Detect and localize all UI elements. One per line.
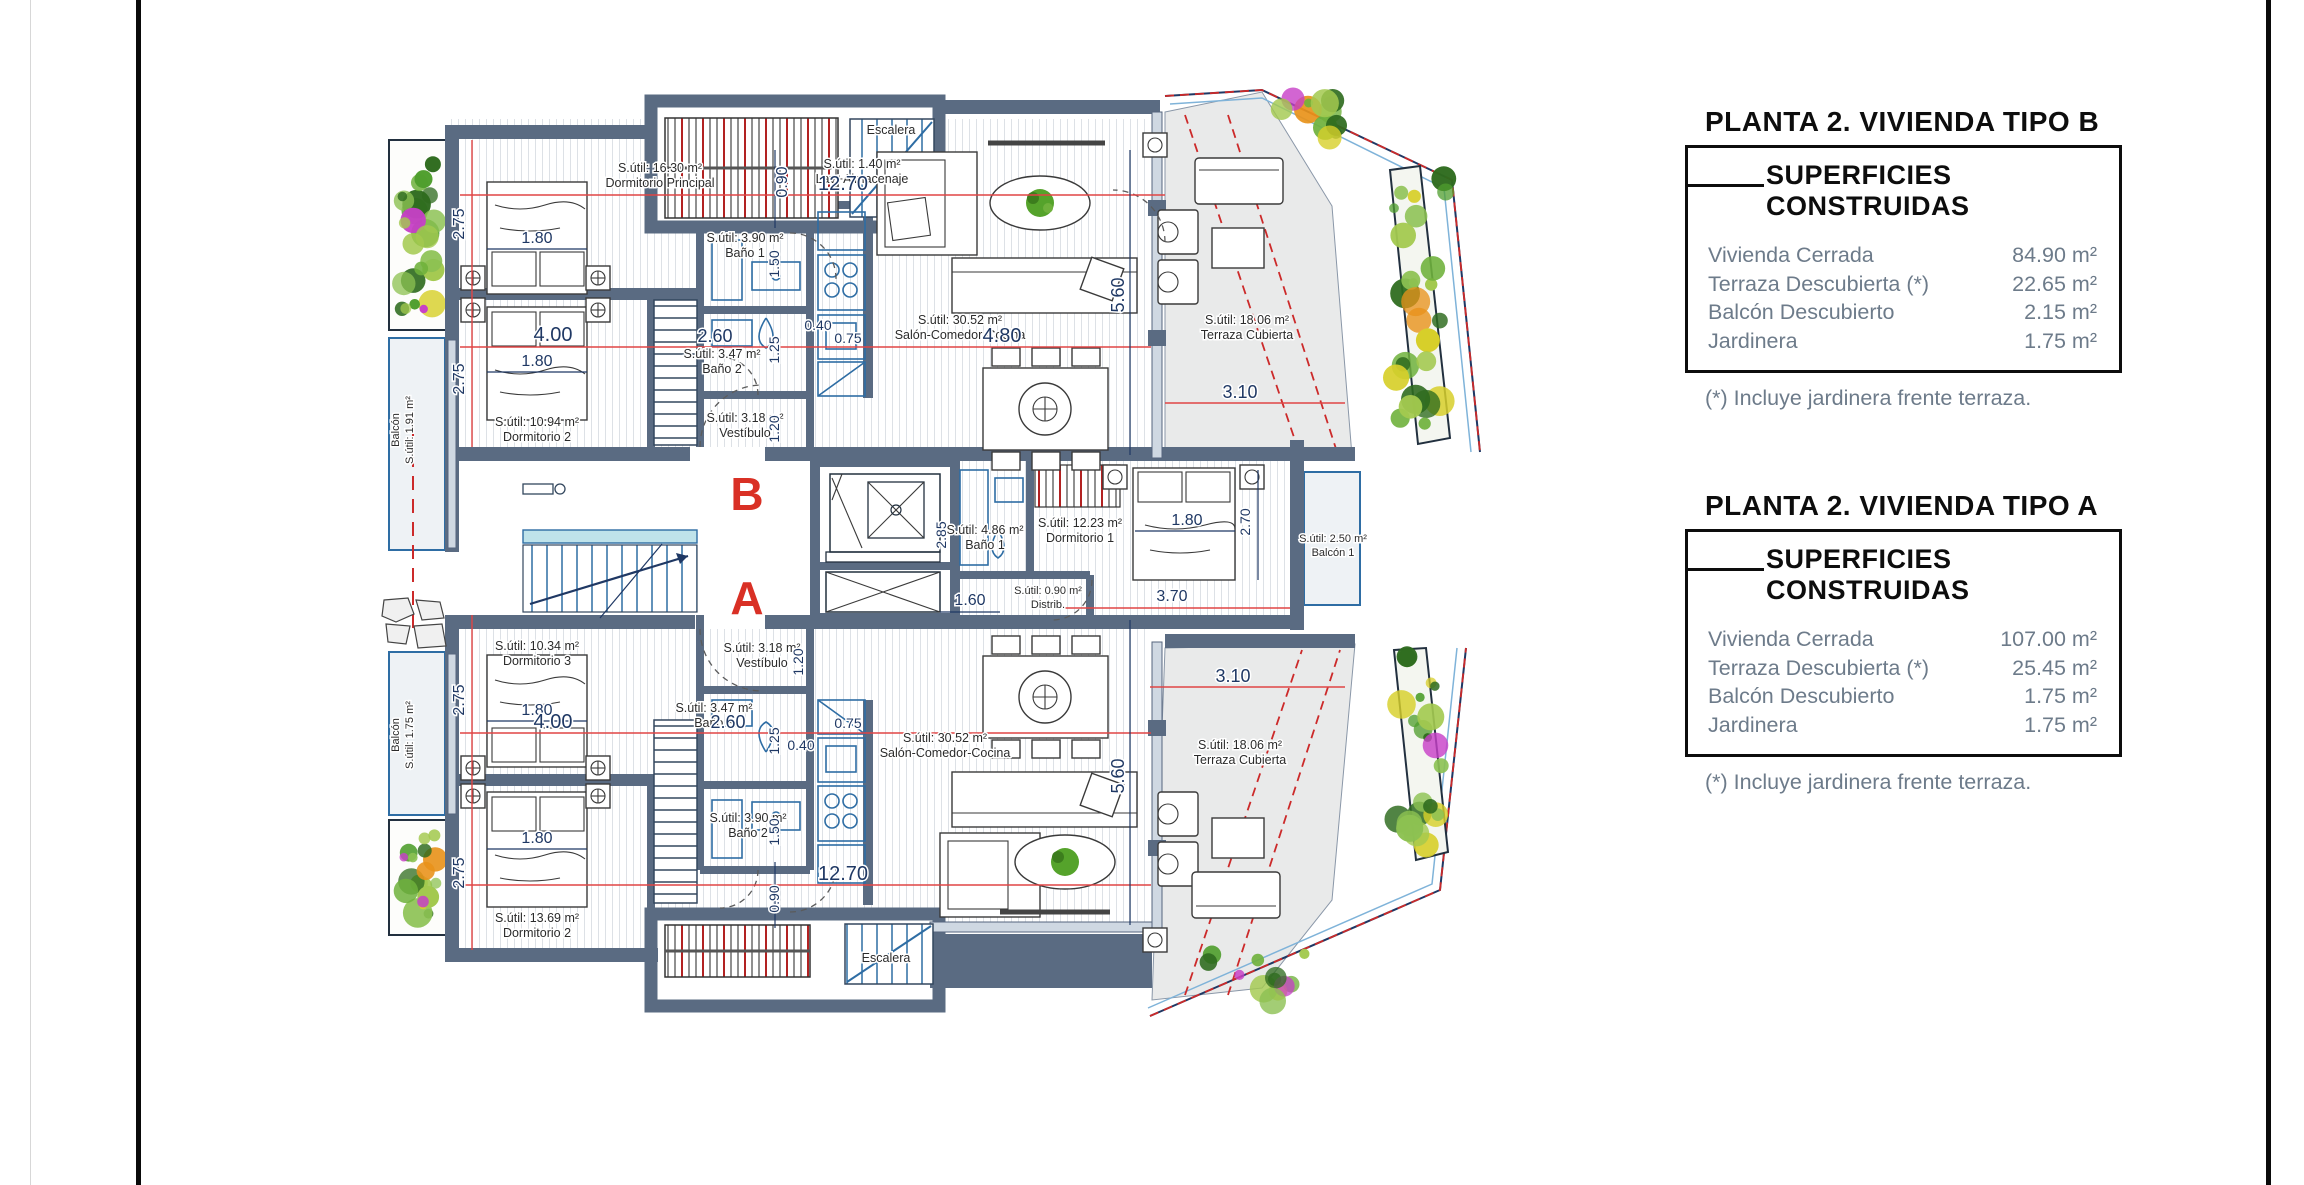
svg-text:0.90: 0.90 <box>766 885 782 912</box>
svg-text:Dormitorio 3: Dormitorio 3 <box>503 654 571 668</box>
svg-text:1.80: 1.80 <box>521 830 552 847</box>
svg-text:Vestíbulo: Vestíbulo <box>736 656 787 670</box>
svg-text:Dormitorio 2: Dormitorio 2 <box>503 926 571 940</box>
row-label: Vivienda Cerrada <box>1708 241 1874 270</box>
panel-b-footnote: (*) Incluye jardinera frente terraza. <box>1685 386 2122 411</box>
svg-text:2.85: 2.85 <box>933 521 949 548</box>
svg-text:Balcón: Balcón <box>390 413 402 447</box>
svg-text:2.60: 2.60 <box>710 712 745 732</box>
svg-text:Baño 2: Baño 2 <box>728 826 768 840</box>
svg-text:4.00: 4.00 <box>534 324 573 346</box>
row-label: Vivienda Cerrada <box>1708 625 1874 654</box>
row-value: 84.90 m² <box>2012 241 2097 270</box>
row-label: Terraza Descubierta (*) <box>1708 270 1929 299</box>
svg-text:Escalera: Escalera <box>867 123 916 137</box>
svg-text:Dormitorio 1: Dormitorio 1 <box>1046 531 1114 545</box>
svg-text:Terraza Cubierta: Terraza Cubierta <box>1194 753 1286 767</box>
floorplan-sheet: { "panels": [ { "title": "PLANTA 2. VIVI… <box>0 0 2304 1185</box>
row-label: Jardinera <box>1708 711 1798 740</box>
row-value: 107.00 m² <box>2000 625 2097 654</box>
unit-letter-b: B <box>730 468 763 520</box>
table-row: Terraza Descubierta (*)25.45 m² <box>1708 654 2097 683</box>
svg-text:0.40: 0.40 <box>804 317 831 333</box>
svg-text:1.20: 1.20 <box>766 415 782 442</box>
svg-text:S.útil: 18.06 m²: S.útil: 18.06 m² <box>1205 313 1289 327</box>
svg-text:S.útil: 2.50 m²: S.útil: 2.50 m² <box>1299 533 1367 545</box>
panel-b-title: PLANTA 2. VIVIENDA TIPO B <box>1685 105 2122 139</box>
svg-text:12.70: 12.70 <box>818 173 868 195</box>
svg-text:0.75: 0.75 <box>834 330 861 346</box>
svg-text:1.60: 1.60 <box>954 592 985 609</box>
table-row: Balcón Descubierto2.15 m² <box>1708 298 2097 327</box>
table-row: Vivienda Cerrada84.90 m² <box>1708 241 2097 270</box>
svg-text:2.75: 2.75 <box>451 857 468 888</box>
svg-text:1.25: 1.25 <box>766 727 782 754</box>
svg-text:S.útil: 3.47 m²: S.útil: 3.47 m² <box>683 347 760 361</box>
svg-text:Balcón 1: Balcón 1 <box>1312 547 1355 559</box>
svg-text:S.útil: 1.75 m²: S.útil: 1.75 m² <box>404 701 416 769</box>
row-label: Balcón Descubierto <box>1708 298 1894 327</box>
svg-text:S.útil: 10.94 m²: S.útil: 10.94 m² <box>495 415 579 429</box>
row-value: 1.75 m² <box>2024 682 2097 711</box>
svg-text:2.75: 2.75 <box>451 684 468 715</box>
svg-text:1.20: 1.20 <box>790 648 806 675</box>
svg-text:S.útil: 3.18 m²: S.útil: 3.18 m² <box>723 641 800 655</box>
svg-text:12.70: 12.70 <box>818 863 868 885</box>
svg-text:4.00: 4.00 <box>534 711 573 733</box>
svg-text:S.útil: 13.69 m²: S.útil: 13.69 m² <box>495 911 579 925</box>
svg-text:S.útil: 1.40 m²: S.útil: 1.40 m² <box>823 157 900 171</box>
svg-text:S.útil: 3.90 m²: S.útil: 3.90 m² <box>706 231 783 245</box>
svg-text:1.50: 1.50 <box>766 250 782 277</box>
table-row: Jardinera1.75 m² <box>1708 711 2097 740</box>
table-row: Vivienda Cerrada107.00 m² <box>1708 625 2097 654</box>
svg-text:S.útil: 4.86 m²: S.útil: 4.86 m² <box>946 523 1023 537</box>
svg-text:S.útil: 12.23 m²: S.útil: 12.23 m² <box>1038 516 1122 530</box>
svg-text:0.75: 0.75 <box>834 715 861 731</box>
table-row: Jardinera1.75 m² <box>1708 327 2097 356</box>
row-value: 1.75 m² <box>2024 327 2097 356</box>
closet-corridor-b <box>654 300 697 445</box>
panel-a-title: PLANTA 2. VIVIENDA TIPO A <box>1685 489 2122 523</box>
svg-text:4.80: 4.80 <box>983 325 1022 347</box>
row-label: Balcón Descubierto <box>1708 682 1894 711</box>
svg-text:1.80: 1.80 <box>521 230 552 247</box>
svg-text:Terraza Cubierta: Terraza Cubierta <box>1201 328 1293 342</box>
table-row: Terraza Descubierta (*)22.65 m² <box>1708 270 2097 299</box>
svg-text:Baño 1: Baño 1 <box>725 246 765 260</box>
svg-text:Escalera: Escalera <box>862 951 911 965</box>
svg-text:0.40: 0.40 <box>787 737 814 753</box>
panel-a-table-header: SUPERFICIES CONSTRUIDAS <box>1688 544 2119 606</box>
svg-text:S.útil: 1.91 m²: S.útil: 1.91 m² <box>404 396 416 464</box>
svg-text:S.útil: 30.52 m²: S.útil: 30.52 m² <box>903 731 987 745</box>
panel-b-surface-table: SUPERFICIES CONSTRUIDAS Vivienda Cerrada… <box>1685 145 2122 373</box>
svg-text:3.70: 3.70 <box>1156 588 1187 605</box>
svg-text:Salón-Comedor-Cocina: Salón-Comedor-Cocina <box>880 746 1011 760</box>
svg-text:Balcón: Balcón <box>390 718 402 752</box>
svg-text:1.80: 1.80 <box>1171 512 1202 529</box>
unit-letter-a: A <box>730 572 763 624</box>
svg-text:S.útil: 16.30 m²: S.útil: 16.30 m² <box>618 161 702 175</box>
svg-text:2.75: 2.75 <box>451 208 468 239</box>
svg-text:S.útil: 0.90 m²: S.útil: 0.90 m² <box>1014 585 1082 597</box>
row-label: Terraza Descubierta (*) <box>1708 654 1929 683</box>
panel-a-surface-table: SUPERFICIES CONSTRUIDAS Vivienda Cerrada… <box>1685 529 2122 757</box>
row-value: 2.15 m² <box>2024 298 2097 327</box>
table-row: Balcón Descubierto1.75 m² <box>1708 682 2097 711</box>
closet-corridor-a <box>654 720 697 903</box>
panel-vivienda-a: PLANTA 2. VIVIENDA TIPO A SUPERFICIES CO… <box>1685 489 2122 795</box>
svg-text:1.50: 1.50 <box>766 818 782 845</box>
svg-text:0.90: 0.90 <box>774 166 791 197</box>
svg-text:S.útil: 10.34 m²: S.útil: 10.34 m² <box>495 639 579 653</box>
row-value: 25.45 m² <box>2012 654 2097 683</box>
stair-glass <box>523 530 697 543</box>
svg-text:Baño 2: Baño 2 <box>702 362 742 376</box>
svg-text:Baño 1: Baño 1 <box>965 538 1005 552</box>
svg-text:1.80: 1.80 <box>521 353 552 370</box>
svg-text:3.10: 3.10 <box>1222 382 1257 402</box>
svg-text:Distrib.: Distrib. <box>1031 599 1065 611</box>
svg-text:2.70: 2.70 <box>1237 508 1253 535</box>
svg-text:2.75: 2.75 <box>451 363 468 394</box>
panel-vivienda-b: PLANTA 2. VIVIENDA TIPO B SUPERFICIES CO… <box>1685 105 2122 411</box>
svg-text:Vestíbulo: Vestíbulo <box>719 426 770 440</box>
svg-text:Dormitorio 2: Dormitorio 2 <box>503 430 571 444</box>
svg-text:5.60: 5.60 <box>1108 277 1128 312</box>
stair-core <box>523 545 697 612</box>
row-value: 22.65 m² <box>2012 270 2097 299</box>
panel-b-table-header: SUPERFICIES CONSTRUIDAS <box>1688 160 2119 222</box>
panel-a-footnote: (*) Incluye jardinera frente terraza. <box>1685 770 2122 795</box>
svg-text:3.10: 3.10 <box>1215 666 1250 686</box>
svg-text:Dormitorio Principal: Dormitorio Principal <box>605 176 714 190</box>
row-label: Jardinera <box>1708 327 1798 356</box>
svg-text:5.60: 5.60 <box>1108 758 1128 793</box>
svg-text:S.útil: 18.06 m²: S.útil: 18.06 m² <box>1198 738 1282 752</box>
svg-text:2.60: 2.60 <box>697 326 732 346</box>
svg-text:1.25: 1.25 <box>766 336 782 363</box>
row-value: 1.75 m² <box>2024 711 2097 740</box>
